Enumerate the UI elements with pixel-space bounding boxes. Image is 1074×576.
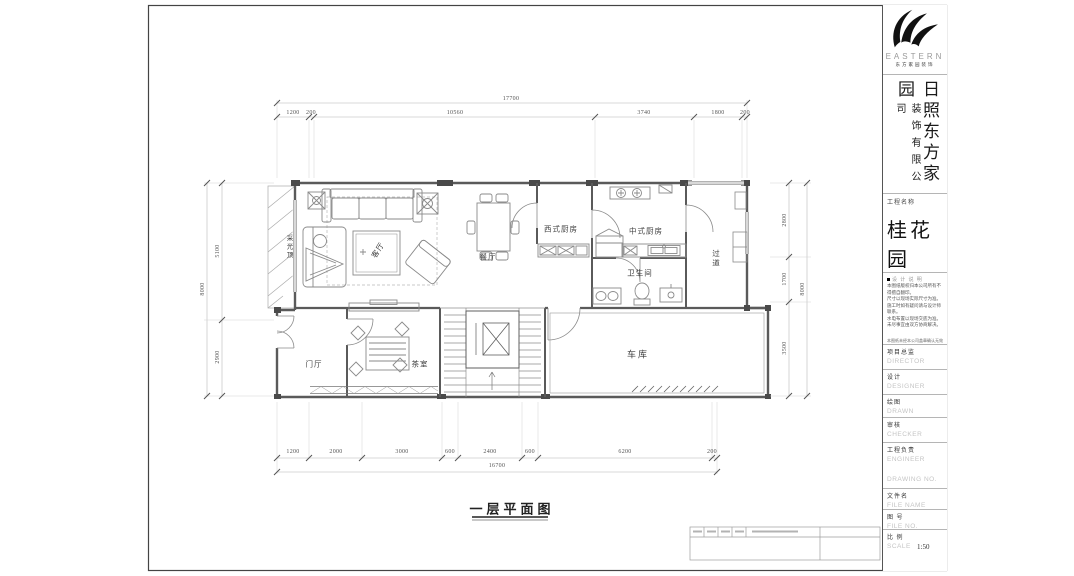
square-bullet-icon [887, 278, 890, 281]
window-band [310, 387, 438, 394]
field-file-name: 文件名 FILE NAME [883, 489, 947, 510]
dim-right-1: 2800 [782, 213, 788, 226]
room-label-foyer: 门厅 [306, 359, 323, 370]
dim-top-2: 200 [306, 110, 316, 116]
room-label-garage: 车库 [627, 348, 649, 361]
kitchen-fixtures [538, 185, 686, 257]
title-block: EASTERN 东方家园装饰 日照东方家园 装饰有限公司 工程名称 桂花园 设 … [882, 5, 947, 571]
room-label-corridor: 过道 [711, 250, 722, 269]
logo-section: EASTERN 东方家园装饰 [883, 5, 947, 75]
project-name-label: 工程名称 [887, 197, 943, 206]
project-section: 工程名称 桂花园 [883, 194, 947, 273]
dim-left-total: 8000 [200, 282, 206, 295]
project-name: 桂花园 [887, 214, 943, 272]
plan-title: 一层平面图 [469, 499, 554, 518]
dim-top-4: 3740 [637, 110, 650, 116]
bathroom-fixtures [593, 283, 682, 305]
field-drawing-no: DRAWING NO. [883, 470, 947, 489]
field-checker: 审核 CHECKER [883, 418, 947, 443]
room-label-tea-room: 茶室 [412, 359, 429, 370]
dim-bot-5: 2400 [483, 449, 496, 455]
brand-name: EASTERN [883, 52, 947, 61]
dim-top-5: 1800 [711, 110, 724, 116]
room-label-west-kitchen: 西式厨房 [544, 224, 578, 235]
drawing-sheet: 17700 1200 200 10560 3740 1800 200 1200 … [0, 0, 1074, 576]
note-line: 尺寸以现场实际尺寸为准。 [887, 296, 943, 303]
dim-left-2: 2900 [215, 350, 221, 363]
room-label-dining: 餐厅 [480, 252, 497, 263]
note-line: 本图纸版权归本公司所有不得擅自翻印。 [887, 283, 943, 296]
dim-right-total: 8000 [800, 282, 806, 295]
field-engineer: 工程负责 ENGINEER [883, 443, 947, 470]
room-label-bathroom: 卫生间 [627, 268, 653, 279]
dim-top-3: 10560 [447, 110, 464, 116]
eastern-logo-icon [885, 7, 945, 51]
dim-bot-1: 1200 [286, 449, 299, 455]
field-drawn: 绘图 DRAWN [883, 395, 947, 418]
revision-table [690, 527, 880, 560]
wall-columns [274, 180, 771, 399]
field-designer: 设计 DESIGNER [883, 370, 947, 395]
tearoom-furniture [349, 300, 419, 376]
company-section: 日照东方家园 装饰有限公司 [883, 75, 947, 194]
dining-furniture [467, 194, 519, 260]
dim-top-1: 1200 [286, 110, 299, 116]
dim-bot-6: 600 [525, 449, 535, 455]
dim-bot-7: 6200 [618, 449, 631, 455]
dim-right-2: 1700 [782, 272, 788, 285]
dim-top-6: 200 [740, 110, 750, 116]
exterior-walls [277, 183, 768, 397]
note-line: 施工时如有疑问请与设计师联系。 [887, 303, 943, 316]
note-line: 未尽事宜由双方协商解决。 [887, 322, 943, 329]
dim-top-total: 17700 [503, 96, 520, 102]
notes-footer: 本图纸未经本公司盖章确认无效 [887, 338, 943, 344]
dim-bot-2: 2000 [329, 449, 342, 455]
field-scale: 比 例 SCALE 1:50 [883, 530, 947, 571]
dim-right-3: 3500 [782, 341, 788, 354]
notes-header: 设 计 说 明 [887, 276, 943, 283]
scale-value: 1:50 [917, 543, 929, 551]
elevator [466, 311, 519, 368]
company-name-sub: 装饰有限公司 [892, 103, 922, 193]
room-label-chinese-kitchen: 中式厨房 [629, 226, 663, 237]
field-director: 项目总监 DIRECTOR [883, 345, 947, 370]
notes-section: 设 计 说 明 本图纸版权归本公司所有不得擅自翻印。 尺寸以现场实际尺寸为准。 … [883, 273, 947, 345]
dim-left-1: 5100 [215, 244, 221, 257]
dim-bot-8: 200 [707, 449, 717, 455]
dim-bot-4: 600 [445, 449, 455, 455]
dim-bottom-total: 16700 [489, 463, 506, 469]
garage-lines [550, 313, 764, 393]
dim-bot-3: 3000 [395, 449, 408, 455]
living-furniture [303, 189, 451, 287]
brand-subtitle: 东方家园装饰 [883, 62, 947, 68]
field-file-no: 图 号 FILE NO. [883, 510, 947, 530]
room-label-skylight: 采光顶 [283, 234, 293, 260]
